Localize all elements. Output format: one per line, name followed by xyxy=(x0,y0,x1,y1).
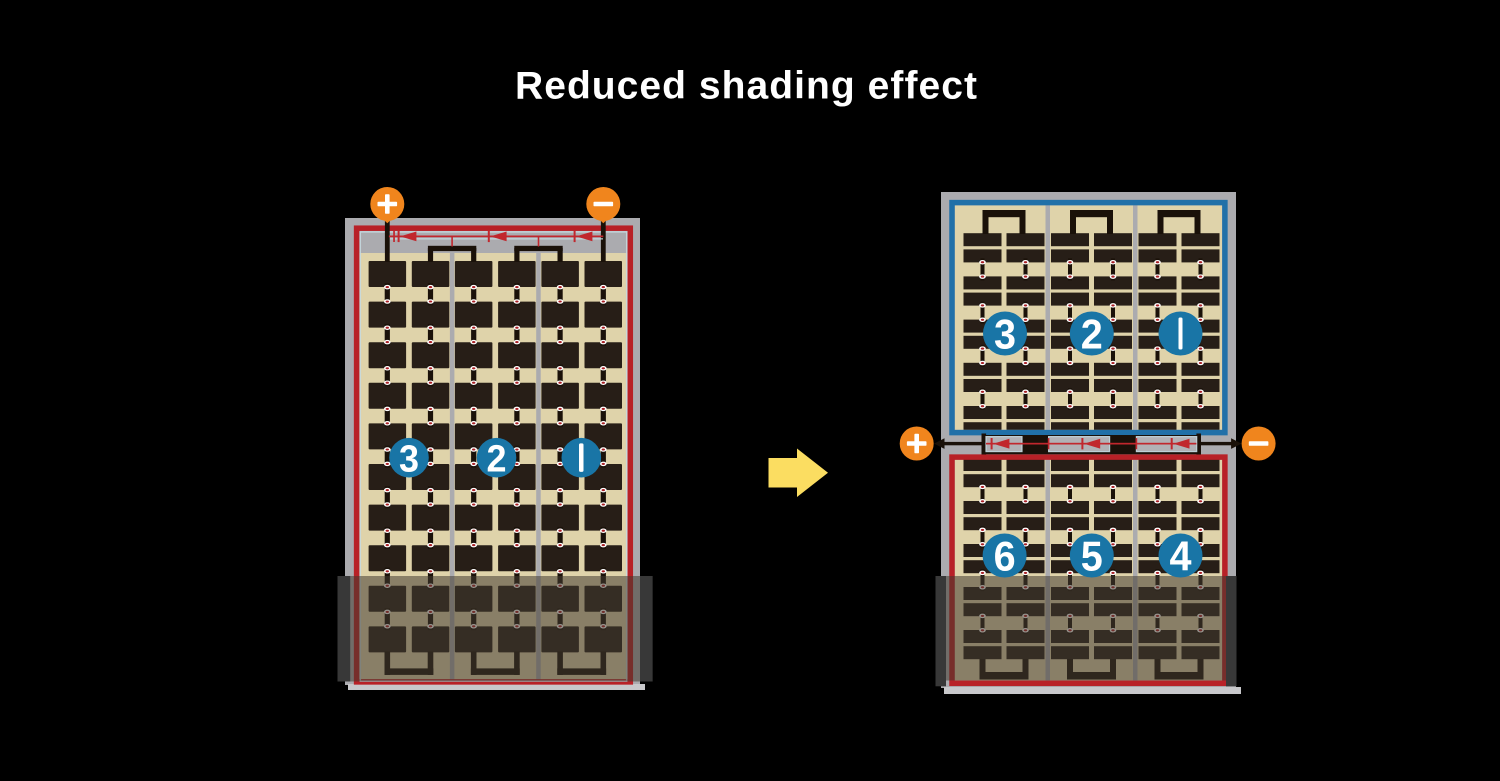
svg-text:4: 4 xyxy=(1170,533,1193,580)
svg-text:3: 3 xyxy=(399,438,419,480)
svg-text:3: 3 xyxy=(994,311,1016,358)
svg-text:6: 6 xyxy=(994,533,1016,580)
svg-text:2: 2 xyxy=(1081,311,1103,358)
svg-text:Reduced shading effect: Reduced shading effect xyxy=(515,64,978,107)
svg-text:2: 2 xyxy=(487,438,507,480)
svg-text:5: 5 xyxy=(1081,533,1103,580)
